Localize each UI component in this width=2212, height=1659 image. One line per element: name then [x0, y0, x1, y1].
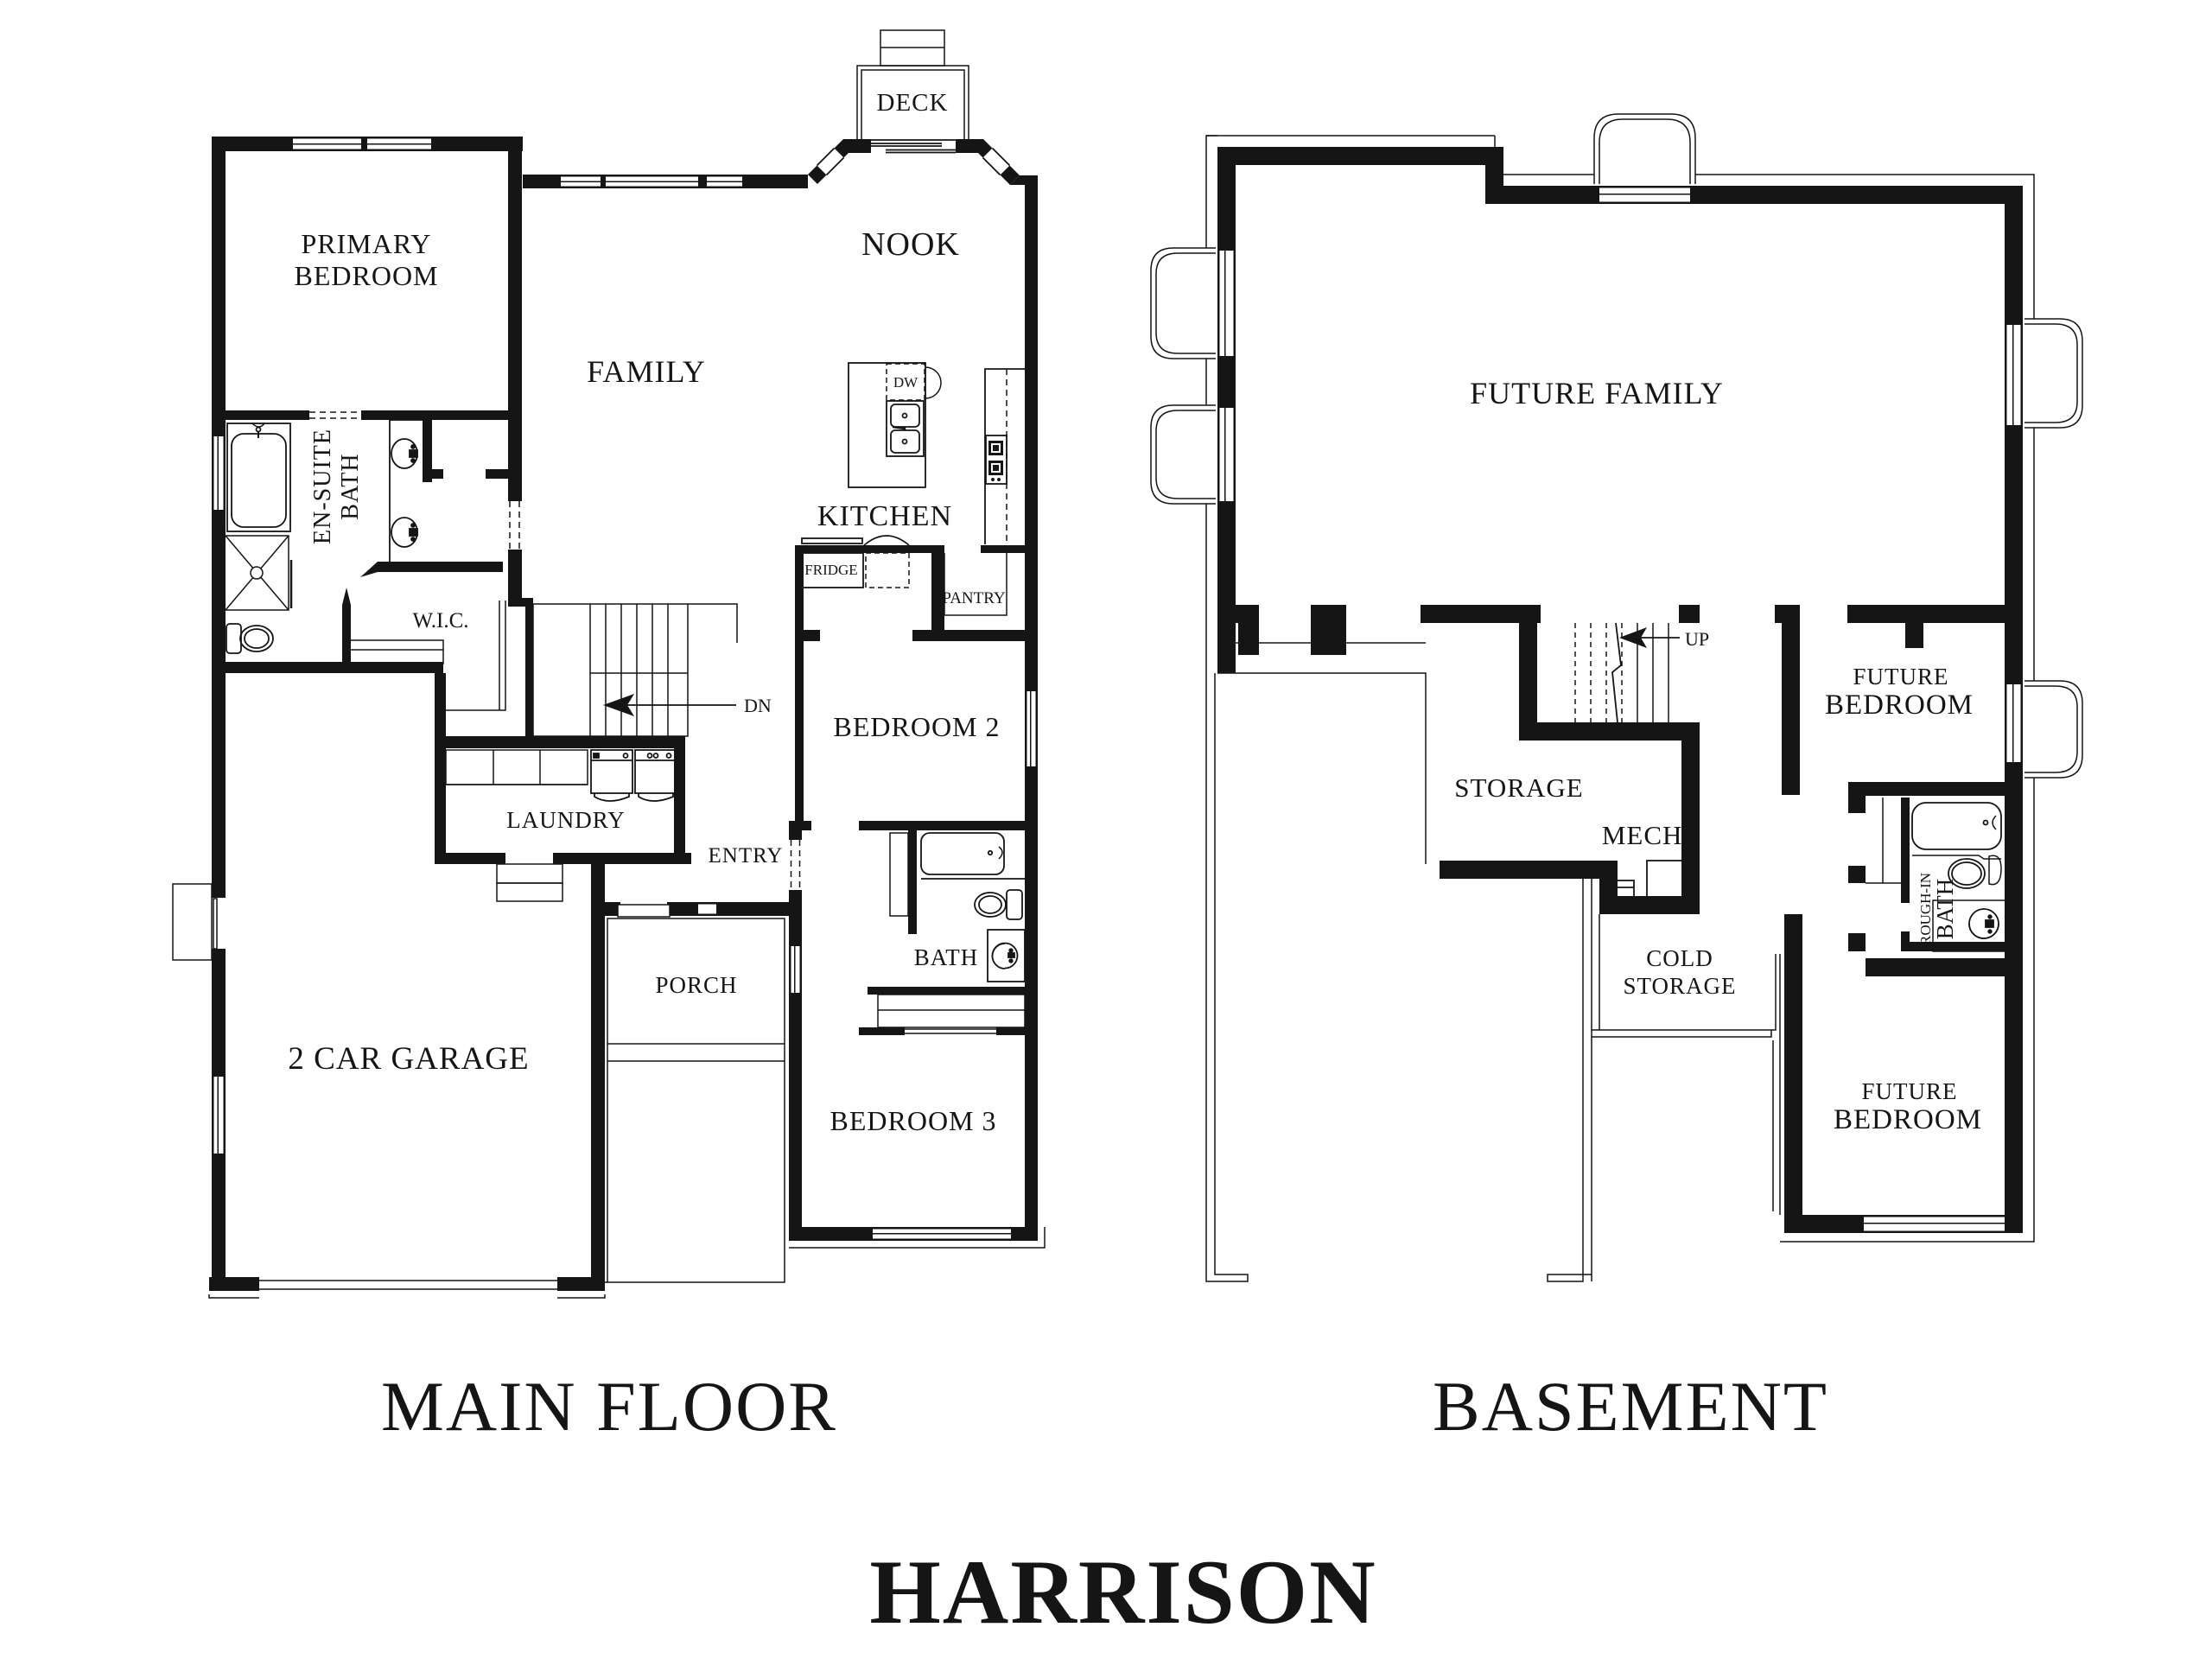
- svg-text:BATH: BATH: [914, 944, 979, 970]
- svg-text:HARRISON: HARRISON: [869, 1541, 1376, 1643]
- svg-text:BATH: BATH: [337, 453, 364, 519]
- svg-text:FUTURE FAMILY: FUTURE FAMILY: [1470, 376, 1724, 410]
- svg-text:PANTRY: PANTRY: [942, 589, 1005, 607]
- svg-text:MAIN FLOOR: MAIN FLOOR: [381, 1367, 837, 1446]
- svg-text:2 CAR GARAGE: 2 CAR GARAGE: [288, 1041, 529, 1077]
- svg-text:BEDROOM 2: BEDROOM 2: [833, 711, 1000, 742]
- svg-text:EN-SUITE: EN-SUITE: [309, 429, 336, 544]
- svg-text:FUTURE: FUTURE: [1853, 664, 1948, 690]
- svg-text:PRIMARY: PRIMARY: [301, 228, 431, 259]
- svg-text:DW: DW: [893, 374, 918, 391]
- svg-text:DECK: DECK: [877, 89, 949, 117]
- svg-text:W.I.C.: W.I.C.: [412, 609, 468, 632]
- svg-text:BEDROOM: BEDROOM: [294, 260, 438, 291]
- svg-text:BEDROOM: BEDROOM: [1825, 690, 1974, 721]
- svg-text:BASEMENT: BASEMENT: [1433, 1367, 1828, 1446]
- svg-text:STORAGE: STORAGE: [1454, 772, 1583, 803]
- svg-text:LAUNDRY: LAUNDRY: [506, 807, 626, 833]
- svg-text:BEDROOM: BEDROOM: [1834, 1104, 1982, 1135]
- svg-text:KITCHEN: KITCHEN: [817, 500, 952, 532]
- svg-text:ENTRY: ENTRY: [709, 844, 784, 868]
- svg-text:MECH.: MECH.: [1602, 820, 1690, 850]
- svg-text:NOOK: NOOK: [861, 226, 960, 263]
- svg-text:BEDROOM 3: BEDROOM 3: [829, 1105, 996, 1136]
- svg-text:COLD: COLD: [1646, 945, 1713, 971]
- svg-text:FAMILY: FAMILY: [587, 354, 706, 389]
- svg-text:FRIDGE: FRIDGE: [804, 562, 857, 578]
- svg-text:PORCH: PORCH: [655, 972, 737, 998]
- svg-text:UP: UP: [1685, 628, 1709, 650]
- svg-text:BATH: BATH: [1932, 879, 1958, 940]
- svg-text:FUTURE: FUTURE: [1861, 1078, 1957, 1104]
- svg-text:DN: DN: [744, 695, 772, 716]
- svg-text:STORAGE: STORAGE: [1623, 973, 1736, 999]
